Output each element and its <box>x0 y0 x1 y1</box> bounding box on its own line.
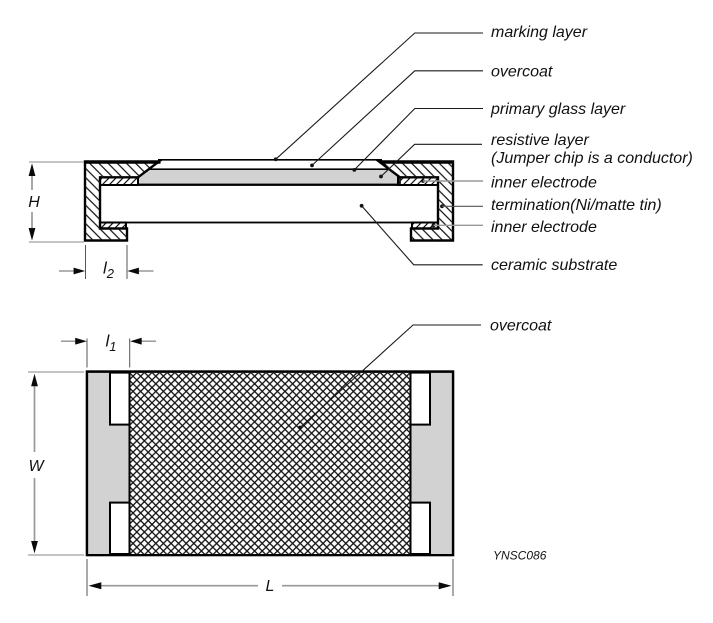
svg-text:l1: l1 <box>106 332 117 355</box>
svg-text:H: H <box>28 194 40 211</box>
svg-text:inner electrode: inner electrode <box>491 219 597 236</box>
svg-text:resistive layer: resistive layer <box>491 132 589 149</box>
svg-text:termination(Ni/matte tin): termination(Ni/matte tin) <box>491 197 662 214</box>
svg-text:l2: l2 <box>103 259 115 282</box>
svg-text:marking layer: marking layer <box>491 24 588 41</box>
svg-text:overcoat: overcoat <box>490 318 552 335</box>
svg-text:YNSC086: YNSC086 <box>493 549 547 563</box>
svg-text:(Jumper chip is a conductor): (Jumper chip is a conductor) <box>491 150 693 167</box>
svg-text:overcoat: overcoat <box>491 63 553 80</box>
svg-text:ceramic substrate: ceramic substrate <box>491 257 617 274</box>
svg-text:L: L <box>266 578 275 595</box>
svg-text:primary glass layer: primary glass layer <box>490 101 626 118</box>
svg-text:inner electrode: inner electrode <box>491 175 597 192</box>
svg-text:W: W <box>28 458 45 475</box>
